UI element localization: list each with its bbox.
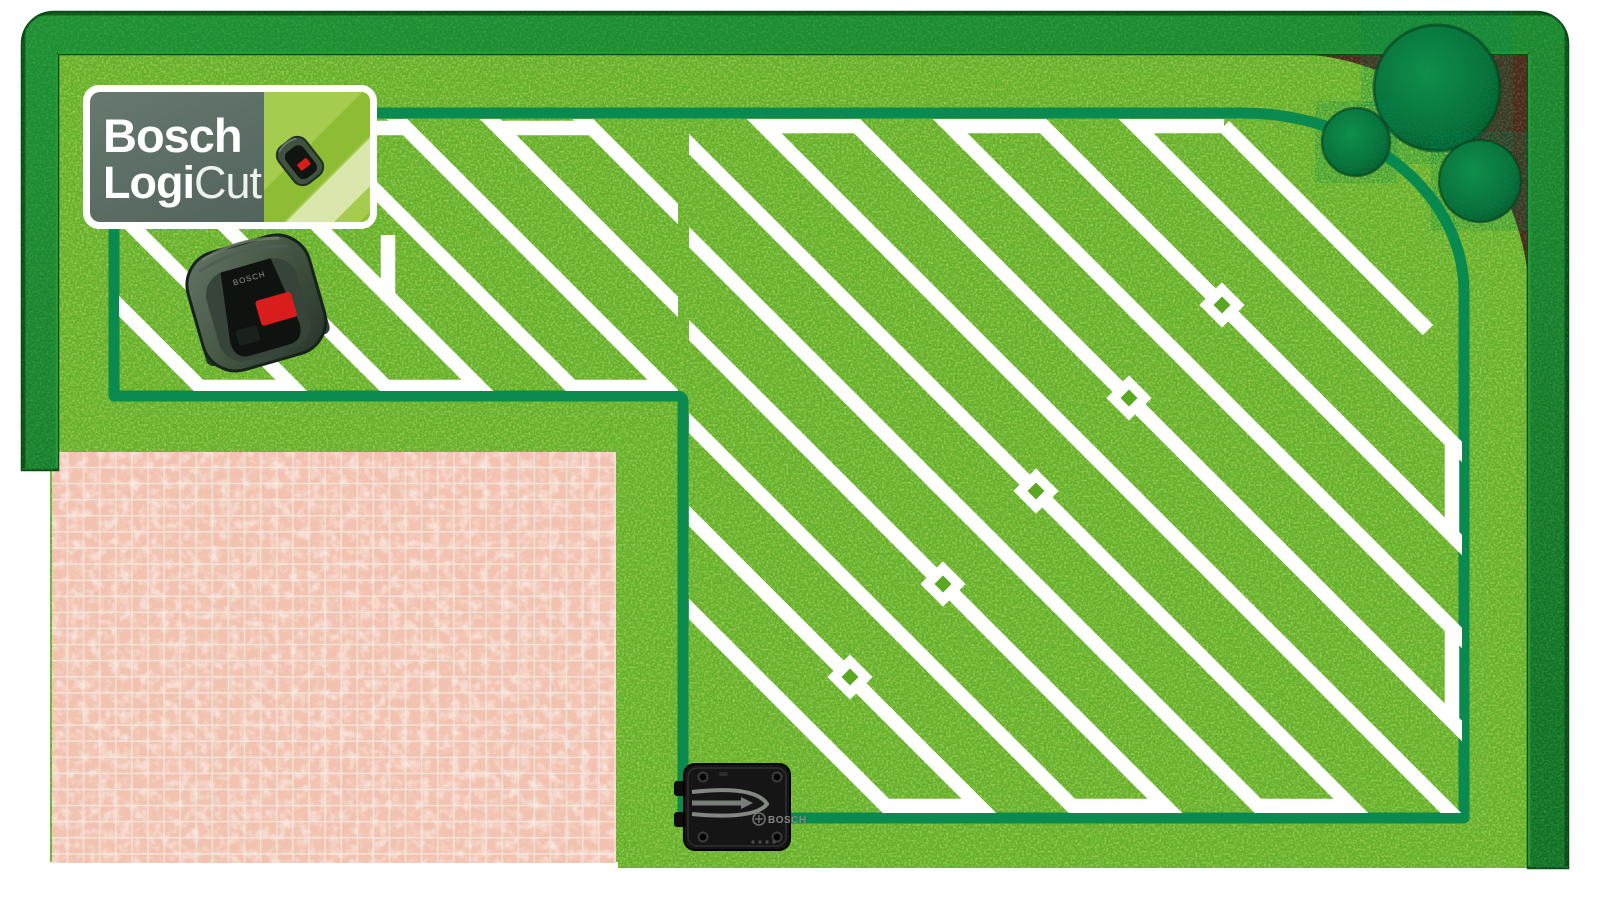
- badge-brand-text: Bosch: [103, 109, 242, 162]
- bush-icon: [1322, 108, 1390, 176]
- bush-icon: [1374, 25, 1500, 151]
- charging-station-icon: BOSCH: [674, 764, 807, 850]
- garden-plan-svg: BOSCH BOSCH: [0, 0, 1600, 900]
- charging-station-label: BOSCH: [768, 815, 807, 826]
- badge-product-text: LogiCut: [103, 157, 262, 208]
- patio: [52, 452, 616, 863]
- bush-icon: [1439, 140, 1521, 222]
- logicut-illustration: BOSCH BOSCH: [0, 0, 1600, 900]
